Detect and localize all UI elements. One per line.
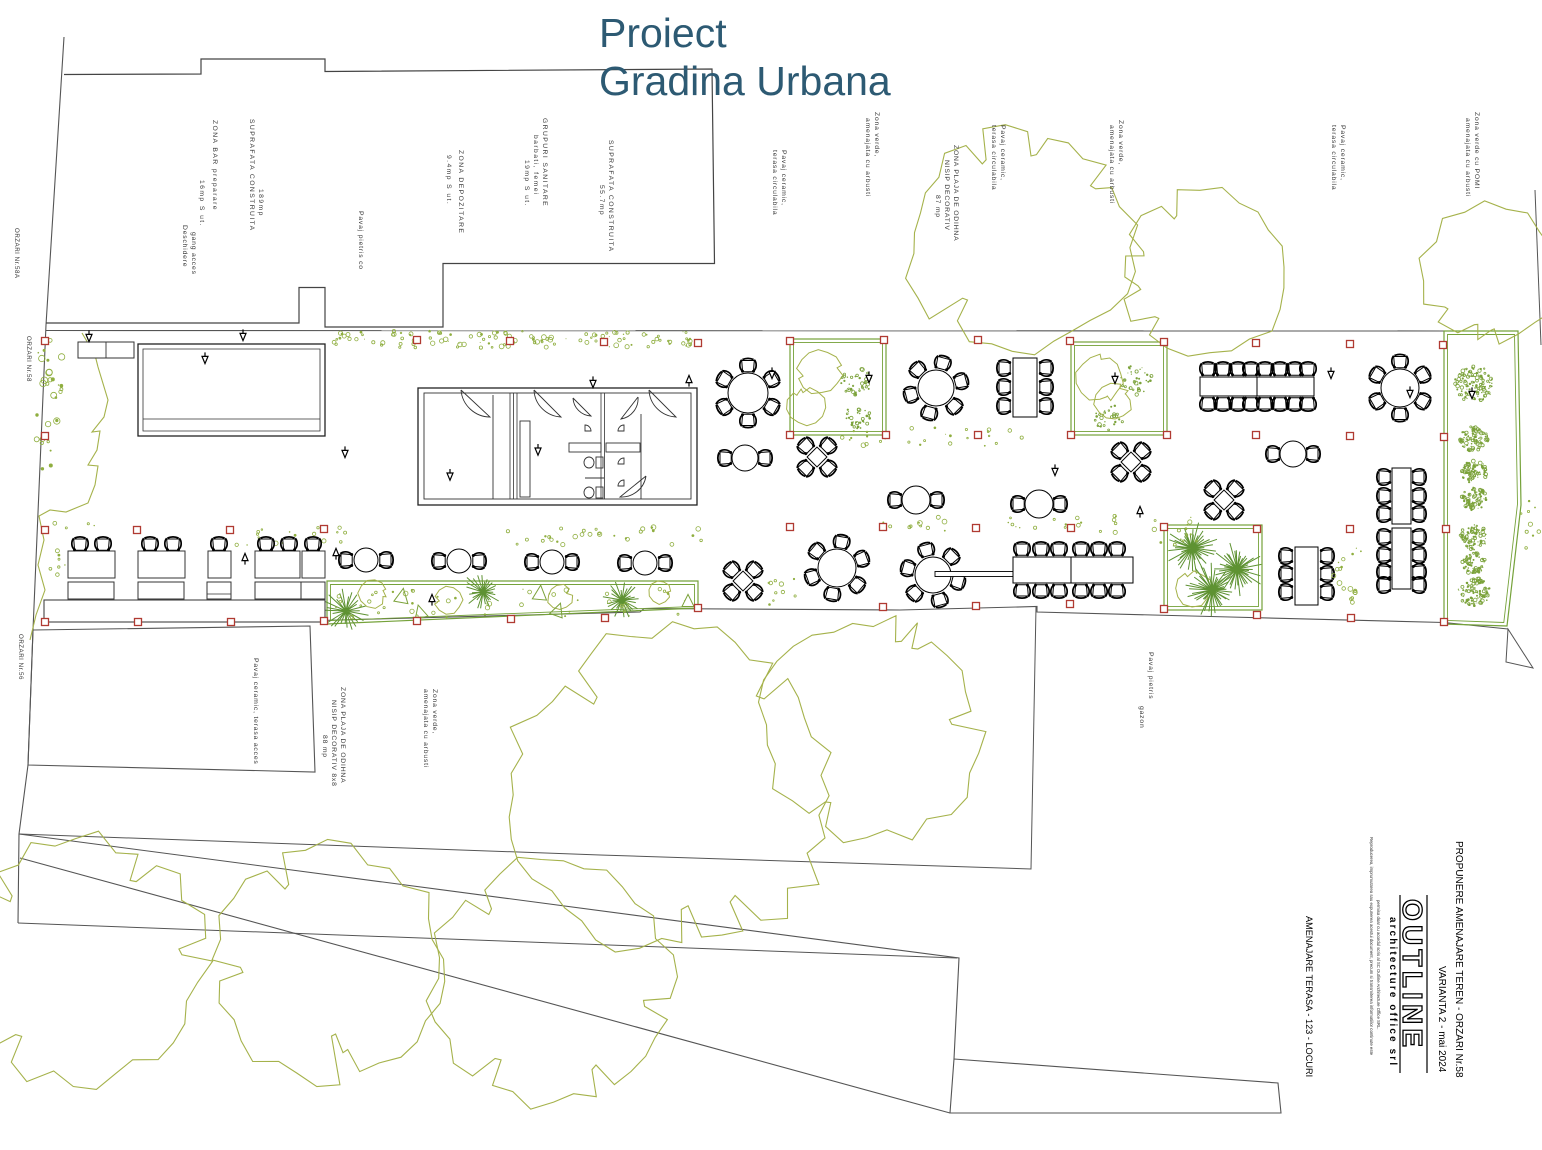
svg-text:barbati, femei: barbati, femei [532, 135, 539, 196]
svg-text:amenajata cu arbusti: amenajata cu arbusti [1108, 125, 1115, 204]
svg-text:VARIANTA 2 - mai 2024: VARIANTA 2 - mai 2024 [1436, 966, 1447, 1073]
svg-text:terasa circulabila: terasa circulabila [771, 150, 778, 215]
svg-text:87 mp: 87 mp [934, 195, 941, 218]
svg-text:Zona verde,: Zona verde, [1117, 120, 1124, 165]
svg-text:amenajata cu arbusti: amenajata cu arbusti [1464, 118, 1471, 197]
svg-text:Pavaj pietris: Pavaj pietris [1147, 652, 1154, 699]
svg-text:55.7mp: 55.7mp [598, 185, 605, 216]
svg-text:gang acces: gang acces [190, 232, 197, 275]
svg-text:9.4mp S ut.: 9.4mp S ut. [445, 155, 452, 205]
svg-text:16mp S ut.: 16mp S ut. [198, 180, 205, 227]
svg-text:NISIP DECORATIV: NISIP DECORATIV [943, 160, 950, 231]
svg-text:ZONA BAR preparare: ZONA BAR preparare [211, 120, 218, 211]
svg-text:189mp: 189mp [257, 189, 264, 217]
svg-text:ORZARI Nr.56: ORZARI Nr.56 [17, 634, 24, 680]
svg-text:Pavaj ceramic, terasa acces: Pavaj ceramic, terasa acces [252, 658, 259, 765]
svg-text:ORZARI Nr.58: ORZARI Nr.58 [25, 336, 32, 382]
svg-text:Zona verde,: Zona verde, [873, 112, 880, 157]
svg-text:Proiect: Proiect [599, 10, 727, 56]
svg-text:88 mp: 88 mp [321, 735, 328, 758]
svg-text:ORZARI Nr.58A: ORZARI Nr.58A [13, 228, 20, 279]
svg-text:amenajata cu arbusti: amenajata cu arbusti [864, 118, 871, 197]
svg-text:amenajata cu arbusti: amenajata cu arbusti [422, 689, 429, 768]
svg-text:Gradina Urbana: Gradina Urbana [599, 58, 891, 104]
svg-text:OUTLINE: OUTLINE [1397, 899, 1428, 1051]
svg-text:ZONA PLAJA DE ODIHNA: ZONA PLAJA DE ODIHNA [952, 145, 959, 241]
svg-text:19mp S ut.: 19mp S ut. [523, 160, 530, 207]
svg-text:Reproducerea, imprumutarea sau: Reproducerea, imprumutarea sau expunerea… [1369, 837, 1374, 1056]
svg-text:Pavaj pietris co: Pavaj pietris co [357, 211, 364, 270]
svg-text:NISIP DECORATIV 8x8: NISIP DECORATIV 8x8 [330, 700, 337, 787]
svg-text:Zona verde cu POMI: Zona verde cu POMI [1473, 112, 1480, 189]
svg-text:ZONA DEPOZITARE: ZONA DEPOZITARE [457, 150, 464, 234]
svg-text:terasa circulabila: terasa circulabila [990, 125, 997, 190]
svg-text:architecture office srl: architecture office srl [1387, 917, 1398, 1067]
svg-text:permisa doar cu acordul scris: permisa doar cu acordul scris al SC Outl… [1376, 900, 1381, 1030]
svg-text:terasa circulabila: terasa circulabila [1330, 125, 1337, 190]
svg-text:Pavaj ceramic,: Pavaj ceramic, [999, 125, 1006, 181]
svg-text:ZONA PLAJA DE ODIHNA: ZONA PLAJA DE ODIHNA [339, 687, 346, 783]
svg-text:GRUPURI SANITARE: GRUPURI SANITARE [541, 118, 548, 207]
svg-text:Deschidere: Deschidere [181, 225, 188, 267]
svg-text:gazon: gazon [1138, 706, 1145, 729]
svg-text:Pavaj ceramic,: Pavaj ceramic, [780, 150, 787, 206]
svg-text:Zona verde,: Zona verde, [431, 689, 438, 734]
svg-text:AMENAJARE TERASA - 123 - LOCUR: AMENAJARE TERASA - 123 - LOCURI [1304, 916, 1314, 1077]
svg-text:SUPRAFATA CONSTRUITA: SUPRAFATA CONSTRUITA [248, 119, 255, 232]
svg-text:SUPRAFATA CONSTRUITA: SUPRAFATA CONSTRUITA [607, 140, 614, 253]
svg-text:Pavaj ceramic,: Pavaj ceramic, [1339, 125, 1346, 181]
svg-text:PROPUNERE AMENAJARE TEREN - OR: PROPUNERE AMENAJARE TEREN - ORZARI Nr.58 [1453, 841, 1464, 1078]
